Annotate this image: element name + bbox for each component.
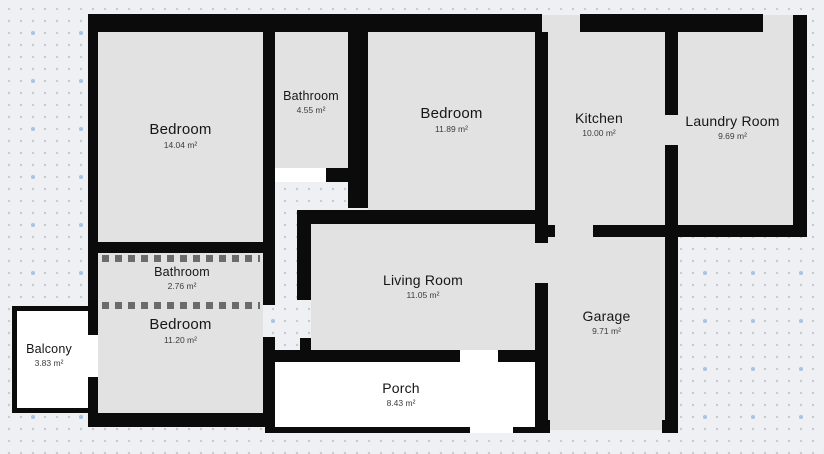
kitchen-laundry-door-opening: [665, 115, 678, 145]
wall-blockA-divider: [88, 242, 275, 253]
room-living-area[interactable]: [311, 224, 535, 350]
room-kitchen-area[interactable]: [545, 32, 665, 225]
room-porch-area[interactable]: [265, 352, 540, 433]
wall-porch-bottom-right: [513, 427, 537, 433]
wall-left-lower: [88, 377, 98, 427]
wall-top-left: [88, 14, 542, 32]
dashed-wall-bathroom2-top: [102, 255, 260, 262]
wall-bathroom1-bottom: [326, 168, 350, 182]
wall-garage-right: [665, 145, 678, 433]
wall-top-right: [580, 14, 763, 32]
dashed-wall-bathroom2-bottom: [102, 302, 260, 309]
room-laundry-area[interactable]: [678, 32, 793, 227]
bathroom1-door-opening: [275, 168, 326, 182]
wall-living-left: [297, 210, 311, 300]
kitchen-door-opening: [542, 15, 580, 32]
wall-left-upper: [88, 14, 98, 335]
wall-bathroom1-right: [348, 32, 368, 208]
room-bathroom-1-area[interactable]: [275, 32, 348, 168]
wall-living-bottom-left: [263, 350, 460, 362]
wall-porch-bottom-left: [265, 427, 470, 433]
wall-living-top: [297, 210, 548, 224]
room-bedroom-2-area[interactable]: [368, 32, 535, 210]
wall-kitchen-left-upper: [535, 32, 548, 243]
porch-bottom-door-opening: [470, 427, 513, 433]
wall-garage-laundry-bottom: [593, 225, 807, 237]
wall-garage-left-lower: [535, 283, 548, 433]
room-garage-area[interactable]: [548, 237, 665, 430]
room-bath2-bed3-area[interactable]: [98, 253, 263, 413]
laundry-door-opening: [763, 15, 793, 32]
garage-side-door-opening: [553, 225, 593, 237]
wall-blockA-right-upper: [263, 32, 275, 305]
room-bedroom-1-area[interactable]: [98, 32, 263, 242]
wall-porch-left: [265, 352, 273, 433]
living-garage-door-opening: [535, 243, 548, 283]
wall-kitchen-laundry-upper: [665, 32, 678, 115]
wall-living-left-stub: [300, 338, 311, 357]
wall-laundry-right: [793, 15, 807, 237]
wall-blockA-bottom: [88, 413, 275, 427]
floor-plan-canvas: Bedroom 14.04 m² Bathroom 4.55 m² Bedroo…: [0, 0, 824, 454]
room-balcony-area[interactable]: [12, 306, 98, 413]
porch-top-door-opening: [460, 350, 498, 362]
